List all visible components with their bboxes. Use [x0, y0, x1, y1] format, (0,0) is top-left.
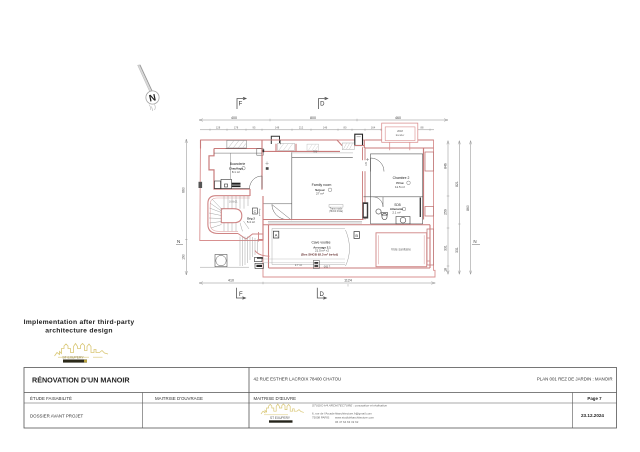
svg-text:Implementation after third-par: Implementation after third-party: [24, 319, 135, 326]
svg-text:146: 146: [323, 125, 328, 129]
svg-text:42 RUE ESTHER LACROIX 78400 CH: 42 RUE ESTHER LACROIX 78400 CHATOU: [254, 377, 342, 382]
svg-text:Page 7: Page 7: [587, 396, 602, 401]
svg-text:8.1 m²: 8.1 m²: [232, 170, 240, 174]
svg-text:N: N: [177, 239, 180, 244]
svg-text:178: 178: [234, 125, 239, 129]
svg-text:331: 331: [444, 245, 448, 251]
svg-text:F: F: [239, 292, 243, 298]
svg-text:D: D: [320, 102, 325, 108]
svg-text:Escalier: Escalier: [396, 134, 405, 137]
svg-text:ÉTUDE FAISABILITÉ: ÉTUDE FAISABILITÉ: [30, 396, 72, 401]
svg-text:ST EXUPERY: ST EXUPERY: [62, 356, 84, 360]
svg-text:(Des SHGB 92.3 m² be-bd): (Des SHGB 92.3 m² be-bd): [301, 253, 338, 257]
svg-text:A: A: [275, 233, 278, 238]
svg-text:B: B: [355, 233, 358, 238]
svg-text:800: 800: [310, 116, 316, 120]
svg-text:065 ?: 065 ?: [324, 265, 331, 269]
svg-text:128: 128: [216, 125, 221, 129]
svg-text:11.5 m²: 11.5 m²: [395, 185, 405, 189]
svg-text:06 47 64 63 19 62: 06 47 64 63 19 62: [335, 420, 359, 424]
svg-text:Chambre 2: Chambre 2: [393, 176, 410, 180]
svg-text:75008 PARIS: 75008 PARIS: [312, 416, 329, 420]
svg-text:164: 164: [371, 125, 376, 129]
svg-text:D: D: [320, 292, 325, 298]
svg-text:Vide sanitaire: Vide sanitaire: [391, 248, 411, 252]
svg-text:23.12.2024: 23.12.2024: [581, 413, 604, 418]
svg-text:18: 18: [444, 268, 448, 272]
svg-text:331: 331: [455, 247, 459, 253]
svg-text:400: 400: [231, 116, 237, 120]
svg-text:190: 190: [182, 254, 186, 260]
svg-text:F: F: [239, 102, 243, 108]
svg-text:821: 821: [455, 181, 459, 187]
svg-text:MAITRISE D'ŒUVRE: MAITRISE D'ŒUVRE: [254, 396, 297, 401]
svg-text:2.7 m²: 2.7 m²: [295, 263, 302, 267]
svg-text:259: 259: [444, 209, 448, 215]
svg-text:parking: parking: [258, 208, 261, 216]
svg-text:27 m²: 27 m²: [316, 192, 324, 196]
svg-text:(HbO4 034a): (HbO4 034a): [329, 210, 343, 213]
svg-text:MAITRISE D'OUVRAGE: MAITRISE D'OUVRAGE: [155, 396, 203, 401]
svg-text:2.1 m²: 2.1 m²: [392, 211, 400, 215]
svg-text:DOSSIER AVANT PROJET: DOSSIER AVANT PROJET: [30, 414, 84, 419]
svg-text:860: 860: [466, 205, 470, 211]
svg-text:786: 786: [313, 149, 318, 153]
svg-text:129: 129: [365, 161, 368, 166]
svg-text:846: 846: [444, 163, 448, 169]
svg-text:N: N: [473, 239, 476, 244]
svg-text:410: 410: [228, 279, 234, 283]
svg-text:16 8x21: 16 8x21: [229, 200, 238, 203]
svg-text:ST EXUPERY: ST EXUPERY: [270, 416, 291, 420]
svg-text:STUDIO H4 ARCHITECTURE : conce: STUDIO H4 ARCHITECTURE : conception et r…: [312, 404, 387, 408]
svg-text:PLAN 001 REZ DE JARDIN : MANOI: PLAN 001 REZ DE JARDIN : MANOIR: [537, 377, 613, 382]
svg-text:148: 148: [275, 125, 280, 129]
svg-text:212: 212: [299, 125, 304, 129]
svg-text:460: 460: [395, 116, 401, 120]
svg-text:1124: 1124: [344, 279, 352, 283]
svg-text:architecture design: architecture design: [45, 327, 112, 334]
svg-text:Family room: Family room: [312, 183, 332, 187]
svg-text:Cave voutée: Cave voutée: [311, 241, 330, 245]
svg-text:2018: 2018: [397, 129, 403, 133]
svg-text:5.4 m²: 5.4 m²: [247, 220, 255, 224]
svg-text:RÉNOVATION D’UN MANOIR: RÉNOVATION D’UN MANOIR: [32, 376, 130, 385]
svg-text:660: 660: [182, 187, 186, 193]
